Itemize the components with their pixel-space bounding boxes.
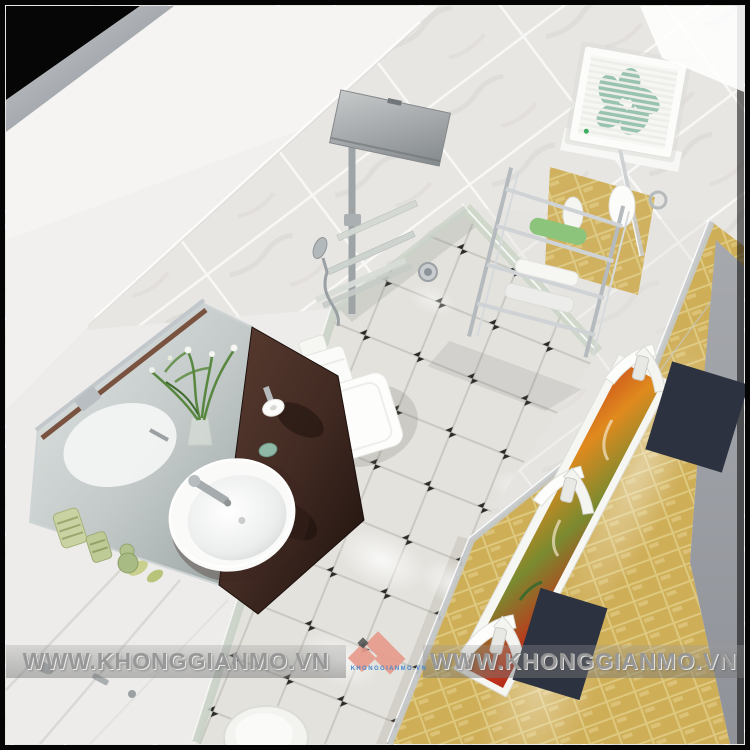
- pipe-bracket: [344, 214, 361, 226]
- logo-caption: KHONGGIANMO.VN: [346, 666, 432, 672]
- bathroom-render-image: WWW.KHONGGIANMO.VN WWW.KHONGGIANMO.VN KH…: [0, 0, 750, 750]
- render-scene: [0, 0, 750, 750]
